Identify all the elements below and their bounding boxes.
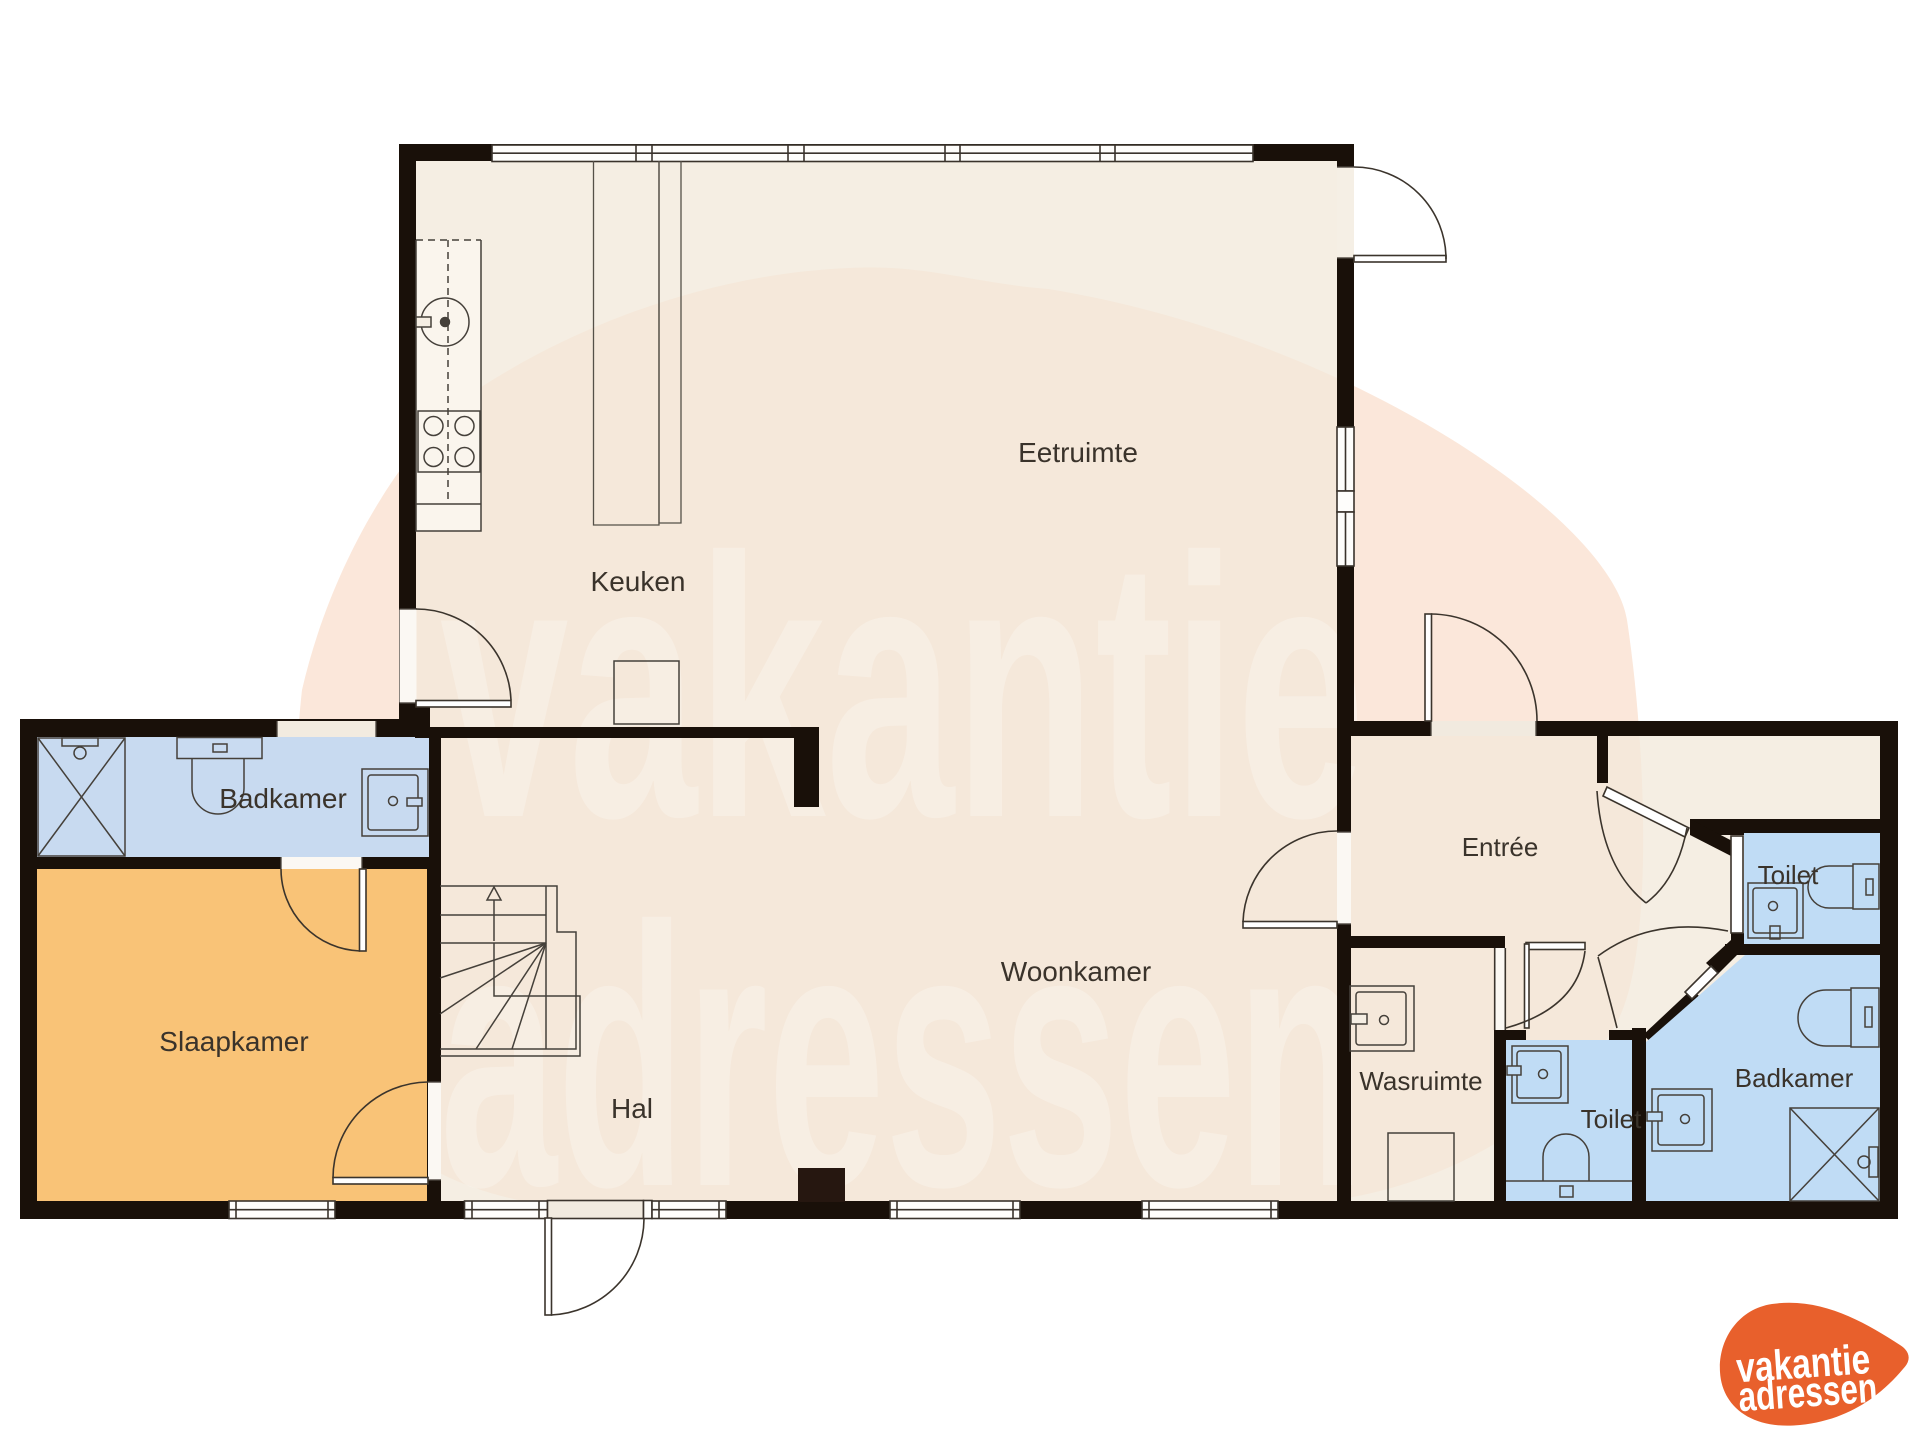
svg-text:Toilet: Toilet xyxy=(1758,860,1819,890)
svg-text:Wasruimte: Wasruimte xyxy=(1359,1066,1482,1096)
svg-text:Keuken: Keuken xyxy=(591,566,686,597)
svg-text:Badkamer: Badkamer xyxy=(1735,1063,1854,1093)
svg-text:vakantie: vakantie xyxy=(440,482,1365,895)
svg-text:Entrée: Entrée xyxy=(1462,832,1539,862)
svg-text:Toilet: Toilet xyxy=(1581,1104,1642,1134)
svg-text:Woonkamer: Woonkamer xyxy=(1001,956,1151,987)
svg-text:adressen: adressen xyxy=(1737,1364,1879,1421)
svg-text:Hal: Hal xyxy=(611,1093,653,1124)
svg-text:Slaapkamer: Slaapkamer xyxy=(159,1026,308,1057)
svg-text:Badkamer: Badkamer xyxy=(219,783,347,814)
svg-text:Eetruimte: Eetruimte xyxy=(1018,437,1138,468)
